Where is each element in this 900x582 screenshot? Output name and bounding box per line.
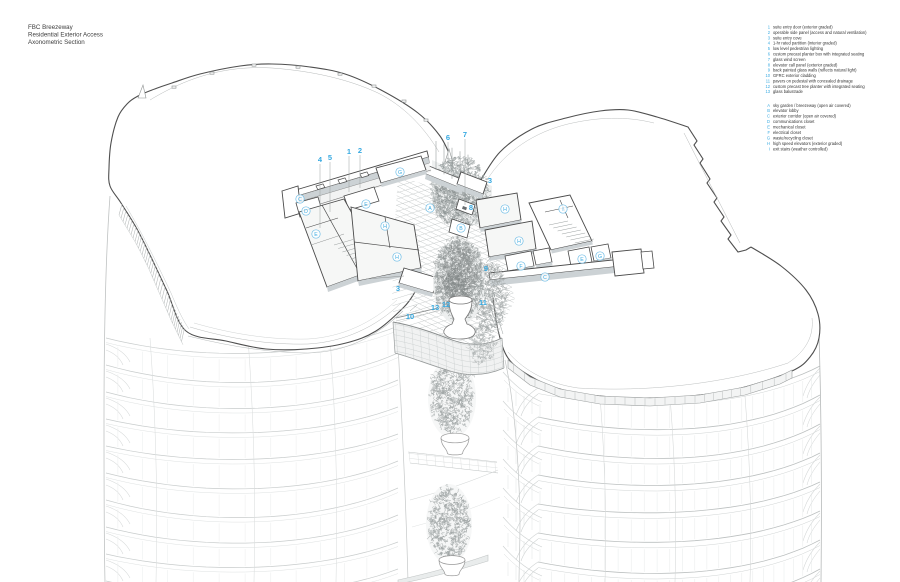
svg-text:5: 5 bbox=[328, 153, 332, 162]
svg-text:suite entry cove: suite entry cove bbox=[773, 35, 802, 40]
svg-text:8: 8 bbox=[469, 203, 473, 212]
svg-text:pavers on pedestal with concea: pavers on pedestal with concealed draina… bbox=[773, 78, 854, 83]
svg-text:12: 12 bbox=[765, 84, 770, 89]
svg-text:13: 13 bbox=[431, 303, 439, 312]
svg-text:F: F bbox=[519, 264, 522, 270]
svg-text:exterior corridor (open air co: exterior corridor (open air covered) bbox=[773, 114, 837, 119]
svg-text:back painted glass walls (refl: back painted glass walls (reflects natur… bbox=[773, 68, 857, 73]
svg-text:I: I bbox=[769, 146, 770, 151]
svg-text:glass wind screen: glass wind screen bbox=[773, 57, 806, 62]
svg-text:communications closet: communications closet bbox=[773, 119, 815, 124]
svg-text:G: G bbox=[598, 254, 602, 260]
svg-text:7: 7 bbox=[463, 130, 467, 139]
svg-text:H: H bbox=[395, 255, 399, 261]
svg-text:D: D bbox=[767, 119, 770, 124]
svg-text:H: H bbox=[503, 207, 507, 213]
svg-text:12: 12 bbox=[442, 300, 450, 309]
svg-text:H: H bbox=[767, 141, 770, 146]
svg-text:glass balustrade: glass balustrade bbox=[773, 89, 804, 94]
svg-text:electrical closet: electrical closet bbox=[773, 130, 802, 135]
svg-text:low level pedestrian lighting: low level pedestrian lighting bbox=[773, 46, 824, 51]
svg-text:11: 11 bbox=[766, 78, 771, 83]
svg-text:I: I bbox=[562, 207, 563, 213]
svg-text:1-hr rated partition (interior: 1-hr rated partition (interior graded) bbox=[773, 41, 837, 46]
svg-text:Axonometric Section: Axonometric Section bbox=[28, 39, 85, 46]
svg-text:E: E bbox=[364, 202, 368, 208]
svg-text:Residential Exterior Access: Residential Exterior Access bbox=[28, 32, 103, 39]
svg-text:custom precast tree planter wi: custom precast tree planter with integra… bbox=[773, 84, 865, 89]
svg-text:10: 10 bbox=[406, 312, 414, 321]
svg-text:2: 2 bbox=[358, 146, 362, 155]
svg-text:C: C bbox=[543, 275, 547, 281]
svg-text:H: H bbox=[517, 239, 521, 245]
svg-text:11: 11 bbox=[479, 298, 487, 307]
svg-text:high speed elevators (exterior: high speed elevators (exterior graded) bbox=[773, 141, 843, 146]
svg-text:3: 3 bbox=[488, 176, 492, 185]
svg-text:C: C bbox=[767, 114, 770, 119]
svg-text:suite entry door (exterior gra: suite entry door (exterior graded) bbox=[773, 25, 833, 30]
svg-text:H: H bbox=[383, 224, 387, 230]
svg-text:exit stairs (weather controlle: exit stairs (weather controlled) bbox=[773, 146, 828, 151]
svg-text:13: 13 bbox=[765, 89, 770, 94]
svg-text:B: B bbox=[767, 108, 770, 113]
svg-text:E: E bbox=[767, 125, 770, 130]
svg-text:mechanical closet: mechanical closet bbox=[773, 125, 806, 130]
svg-text:waste/recycling closet: waste/recycling closet bbox=[773, 136, 814, 141]
svg-text:A: A bbox=[767, 103, 770, 108]
svg-text:10: 10 bbox=[765, 73, 770, 78]
svg-text:3: 3 bbox=[396, 284, 400, 293]
svg-text:GFRC exterior cladding: GFRC exterior cladding bbox=[773, 73, 816, 78]
svg-text:G: G bbox=[767, 136, 770, 141]
svg-text:elevator call panel (exterior: elevator call panel (exterior graded) bbox=[773, 62, 838, 67]
svg-text:1: 1 bbox=[347, 147, 351, 156]
svg-text:FBC Breezeway: FBC Breezeway bbox=[28, 24, 74, 31]
svg-text:9: 9 bbox=[484, 264, 488, 273]
svg-text:elevator lobby: elevator lobby bbox=[773, 108, 799, 113]
svg-text:sky garden / breezeway (open a: sky garden / breezeway (open air covered… bbox=[773, 103, 851, 108]
svg-text:A: A bbox=[428, 206, 432, 212]
svg-text:custom precast planter box wit: custom precast planter box with integrat… bbox=[773, 52, 865, 57]
svg-text:B: B bbox=[459, 226, 463, 232]
svg-text:G: G bbox=[398, 170, 402, 176]
svg-text:E: E bbox=[314, 232, 318, 238]
svg-text:operable side panel (access an: operable side panel (access and natural … bbox=[773, 30, 867, 35]
svg-text:C: C bbox=[298, 197, 302, 203]
svg-text:E: E bbox=[580, 257, 584, 263]
svg-text:6: 6 bbox=[446, 133, 450, 142]
svg-text:D: D bbox=[304, 209, 308, 215]
